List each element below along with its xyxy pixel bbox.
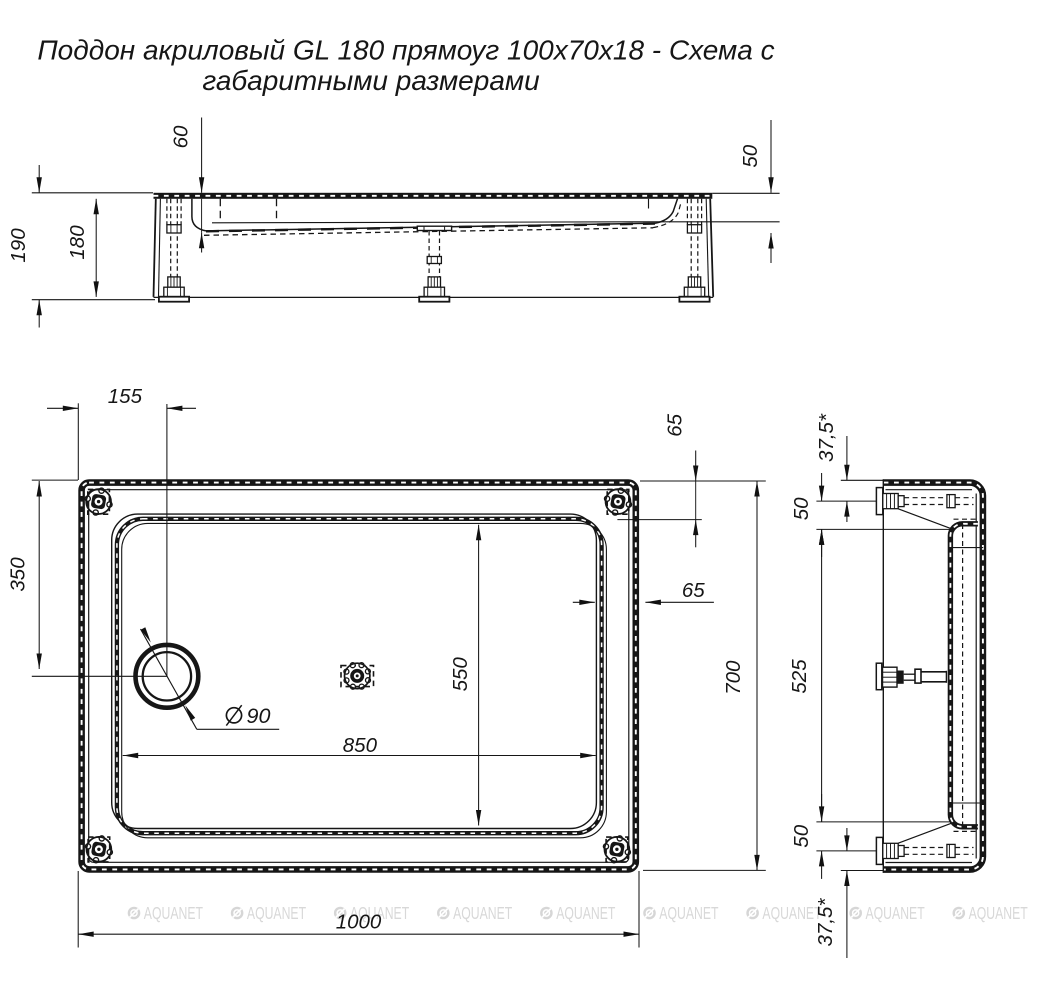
svg-text:65: 65 (682, 579, 705, 602)
svg-text:AQUANET: AQUANET (247, 904, 306, 924)
svg-text:AQUANET: AQUANET (144, 904, 203, 924)
svg-text:50: 50 (739, 144, 762, 167)
svg-text:50: 50 (790, 824, 813, 847)
svg-text:габаритными размерами: габаритными размерами (202, 65, 540, 96)
svg-text:AQUANET: AQUANET (762, 904, 821, 924)
svg-text:525: 525 (788, 659, 811, 694)
svg-text:155: 155 (108, 385, 143, 408)
svg-text:37,5*: 37,5* (814, 898, 837, 947)
svg-text:180: 180 (66, 225, 89, 260)
svg-text:850: 850 (343, 734, 378, 757)
svg-text:550: 550 (449, 657, 472, 692)
svg-text:Поддон акриловый GL 180 прямо: Поддон акриловый GL 180 прямоуг 100х70х1… (37, 35, 774, 66)
svg-text:AQUANET: AQUANET (453, 904, 512, 924)
svg-text:90: 90 (247, 704, 271, 728)
svg-text:60: 60 (169, 125, 192, 148)
svg-text:190: 190 (7, 228, 30, 263)
svg-text:37,5*: 37,5* (815, 413, 838, 462)
svg-text:50: 50 (790, 497, 813, 520)
svg-text:65: 65 (663, 413, 686, 436)
svg-text:AQUANET: AQUANET (556, 904, 615, 924)
svg-text:AQUANET: AQUANET (659, 904, 718, 924)
svg-text:1000: 1000 (336, 910, 382, 933)
svg-text:700: 700 (722, 660, 745, 695)
svg-text:350: 350 (6, 557, 29, 592)
svg-text:AQUANET: AQUANET (866, 904, 925, 924)
svg-text:AQUANET: AQUANET (969, 904, 1028, 924)
